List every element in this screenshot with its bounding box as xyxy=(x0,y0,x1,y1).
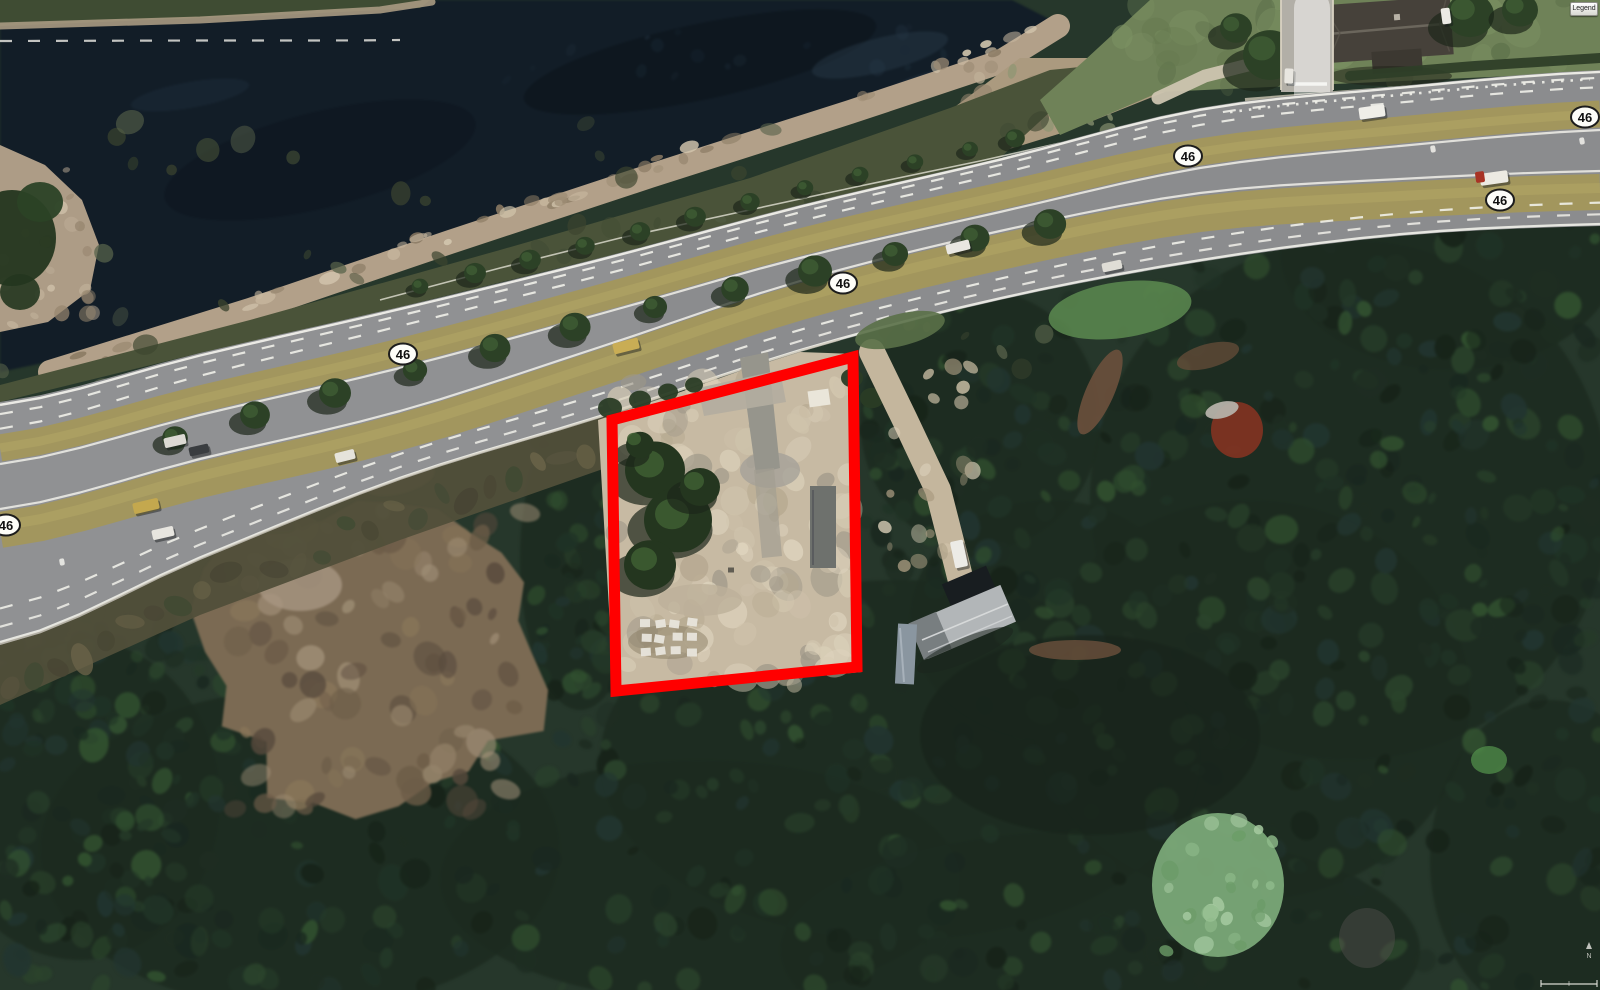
route-46-shield: 46 xyxy=(1174,146,1202,167)
svg-text:46: 46 xyxy=(1181,149,1195,164)
satellite-map-viewport[interactable]: 464646464646N Legend xyxy=(0,0,1600,990)
svg-text:46: 46 xyxy=(0,518,13,533)
svg-text:46: 46 xyxy=(1493,193,1507,208)
route-46-shield: 46 xyxy=(389,344,417,365)
parcel-lot xyxy=(598,352,884,697)
route-46-shield: 46 xyxy=(0,515,20,536)
legend-button[interactable]: Legend xyxy=(1570,2,1598,16)
route-46-shield: 46 xyxy=(1571,107,1599,128)
route-46-shield: 46 xyxy=(1486,190,1514,211)
svg-text:46: 46 xyxy=(836,276,850,291)
svg-text:46: 46 xyxy=(1578,110,1592,125)
route-46-shield: 46 xyxy=(829,273,857,294)
svg-text:46: 46 xyxy=(396,347,410,362)
satellite-map[interactable]: 464646464646N xyxy=(0,0,1600,990)
svg-text:N: N xyxy=(1586,953,1591,960)
